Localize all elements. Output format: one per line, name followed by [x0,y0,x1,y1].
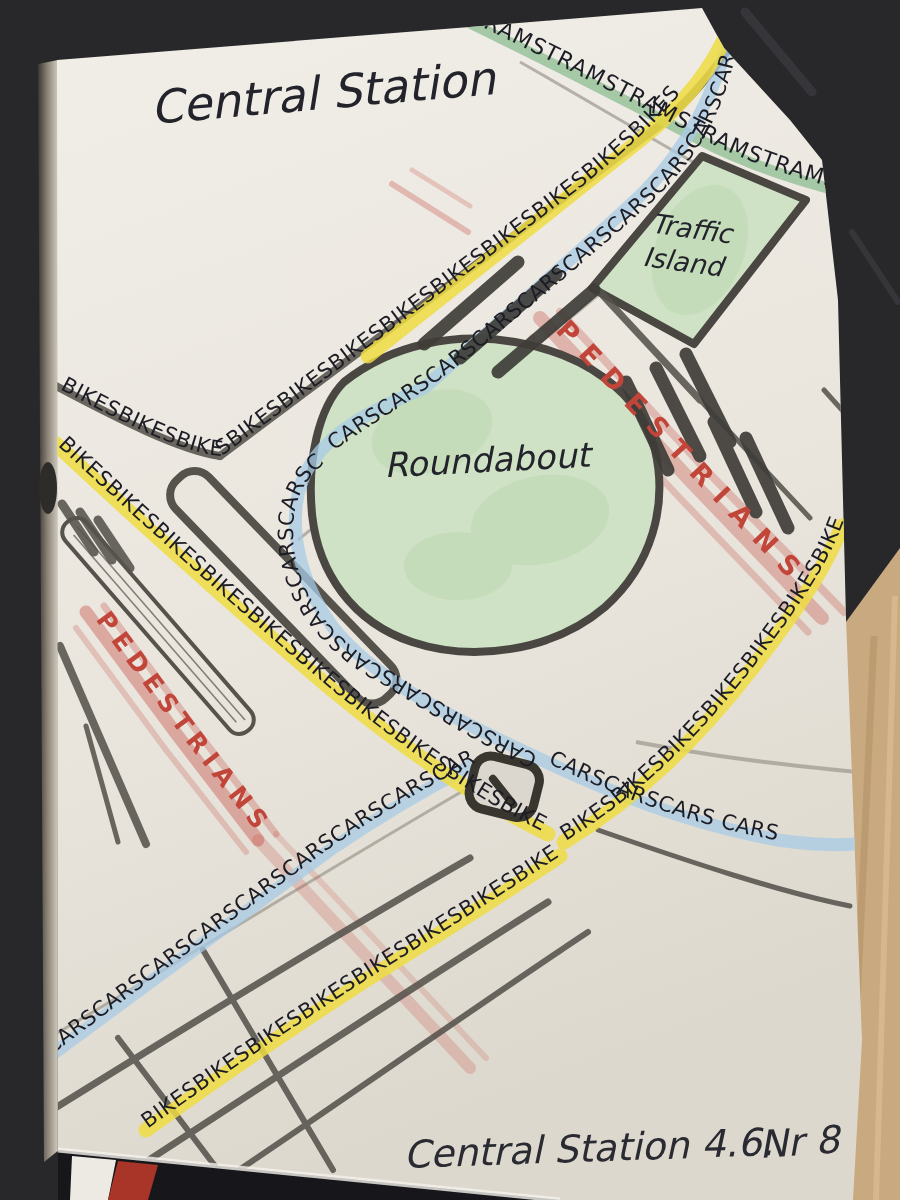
notebook-photo: TRAMSTRAMSTRAMSTRAMSTRAMSTRAMS BIKESBIKE… [0,0,900,1200]
footer-page-number: Nr 8 [758,1117,845,1167]
sketch-map-canvas: TRAMSTRAMSTRAMSTRAMSTRAMSTRAMS BIKESBIKE… [0,0,900,1200]
ink-smudge [39,462,57,514]
page-stack-edge [70,1156,116,1200]
